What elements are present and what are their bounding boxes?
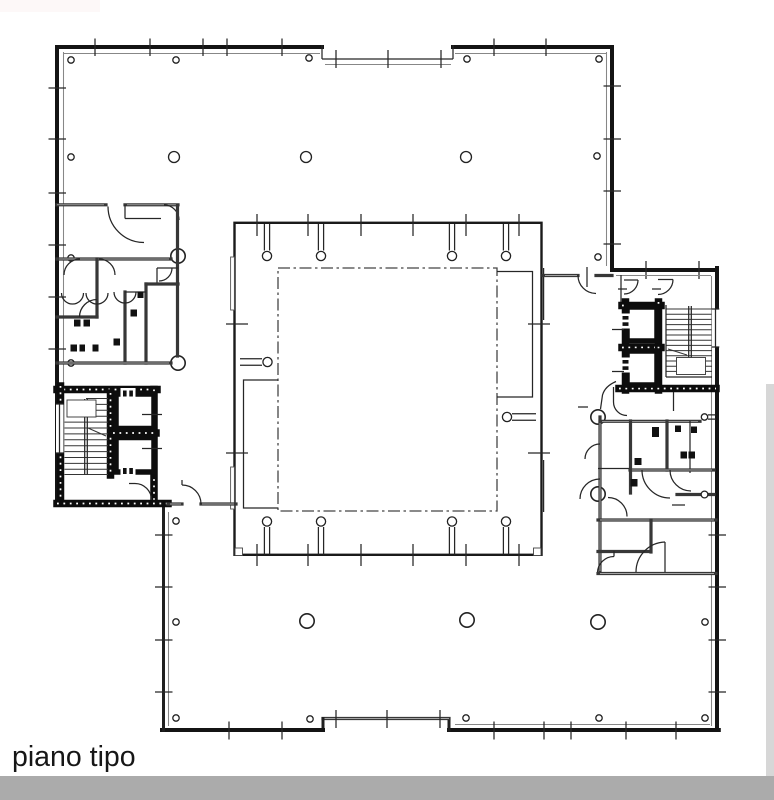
svg-text:piano tipo: piano tipo — [12, 741, 136, 773]
